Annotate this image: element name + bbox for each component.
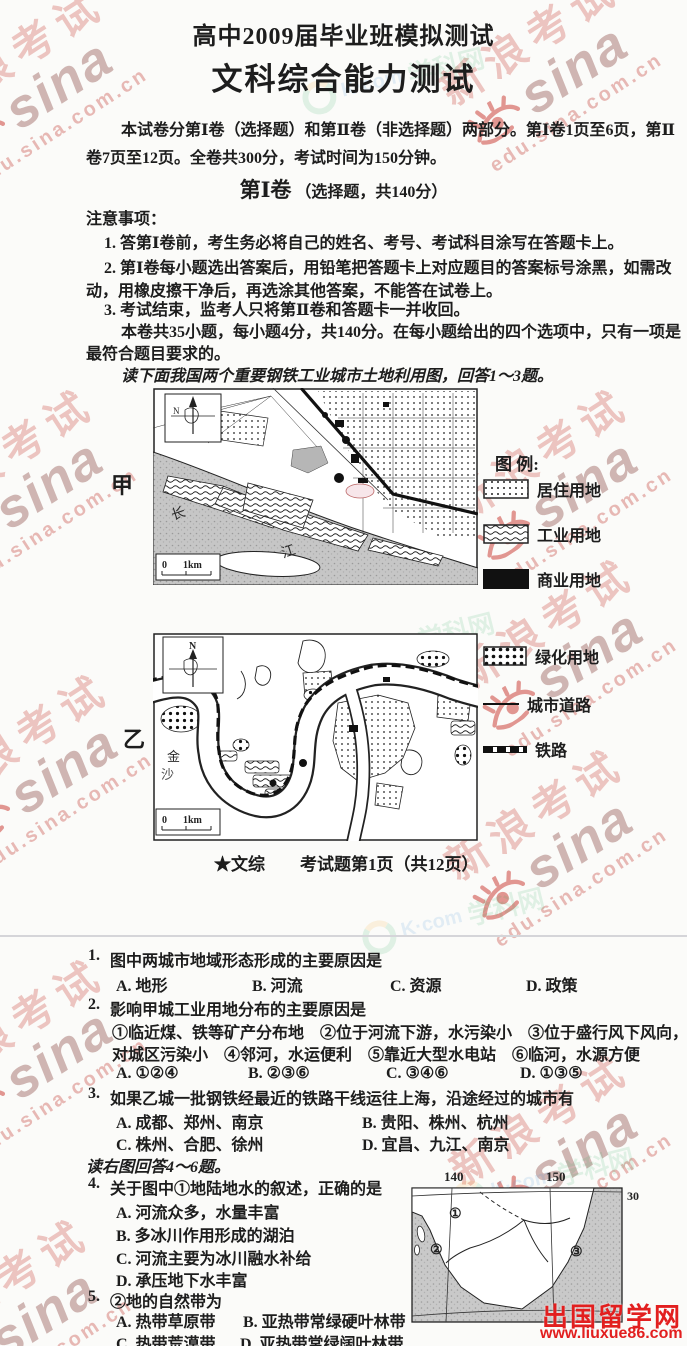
green-swatch-icon	[483, 646, 527, 666]
sina-eye-icon	[0, 103, 15, 166]
exam-subtitle: 文科综合能力测试	[0, 54, 687, 99]
q3-option-c: C. 株州、合肥、徐州	[116, 1131, 264, 1155]
notice-item-2-line-1: 2. 第Ⅰ卷每小题选出答案后，用铅笔把答题卡上对应题目的答案标号涂黑，如需改	[104, 254, 672, 278]
q1-option-c: C. 资源	[390, 972, 442, 996]
legend-title: 图 例:	[495, 450, 539, 475]
section-title: 第Ⅰ卷	[240, 178, 292, 202]
q2-items-line-2: 对城区污染小 ④邻河，水运便利 ⑤靠近大型水电站 ⑥临河，水源方便	[112, 1041, 640, 1065]
q4-stem: 关于图中①地陆地水的叙述，正确的是	[110, 1175, 382, 1199]
intro-line-1: 本试卷分第Ⅰ卷（选择题）和第Ⅱ卷（非选择题）两部分。第Ⅰ卷1页至6页，第Ⅱ	[121, 116, 675, 140]
svg-text:0: 0	[162, 560, 167, 571]
q5-number: 5.	[88, 1288, 100, 1306]
legend-residential: 居住用地	[483, 477, 601, 501]
river-name-char-1: 金	[167, 749, 180, 764]
scan-page-divider	[0, 935, 687, 937]
lat-label-30: 30	[627, 1189, 639, 1203]
map-jia-land-use: N 0 1km 长 江	[153, 388, 478, 585]
q2-option-c: C. ③④⑥	[386, 1063, 449, 1083]
map-point-1: ①	[449, 1207, 462, 1222]
q2-option-a: A. ①②④	[116, 1063, 179, 1083]
svg-text:0: 0	[162, 815, 167, 826]
q2-stem: 影响甲城工业用地分布的主要原因是	[110, 996, 366, 1020]
map-point-3: ③	[570, 1245, 583, 1260]
q1-stem: 图中两城市地域形态形成的主要原因是	[110, 947, 382, 971]
exam-scan-page: 新浪考试 sina edu.sina.com.cn 新浪考试 sina edu.…	[0, 0, 687, 1346]
q5-option-b: B. 亚热带常绿硬叶林带	[243, 1308, 406, 1332]
footer-doc-label: ★文综	[214, 850, 265, 875]
reading-prompt-q4-6: 读右图回答4～6题。	[86, 1153, 230, 1177]
q3-option-d: D. 宜昌、九江、南京	[362, 1131, 510, 1155]
svg-text:1km: 1km	[183, 815, 203, 826]
q1-number: 1.	[88, 947, 100, 965]
scale-bar: 0 1km	[156, 554, 220, 580]
q1-option-b: B. 河流	[252, 972, 303, 996]
industrial-swatch-icon	[483, 524, 529, 544]
railway-swatch-icon	[483, 746, 527, 753]
sina-eye-icon	[0, 788, 20, 851]
q3-stem: 如果乙城一批钢铁经最近的铁路干线运往上海，沿途经过的城市有	[110, 1085, 574, 1109]
north-arrow-icon: N	[163, 637, 223, 693]
river-name-char-2: 沙	[161, 767, 174, 782]
sina-eye-icon	[0, 1073, 15, 1136]
q5-option-a: A. 热带草原带	[116, 1308, 216, 1332]
legend-industrial: 工业用地	[483, 522, 601, 546]
map-yi-land-use: N 0 1km 金 沙	[153, 633, 478, 841]
reading-prompt-q1-3: 读下面我国两个重要钢铁工业城市土地利用图，回答1～3题。	[121, 362, 553, 386]
q1-option-a: A. 地形	[116, 972, 168, 996]
map-point-2: ②	[430, 1243, 443, 1258]
xkw-watermark: K·com 学科网	[358, 878, 548, 959]
q3-option-b: B. 贵阳、株州、杭州	[362, 1109, 509, 1133]
q5-option-c: C. 热带荒漠带	[116, 1330, 216, 1346]
scale-bar: 0 1km	[156, 809, 220, 835]
q2-option-b: B. ②③⑥	[248, 1063, 310, 1083]
notice-item-3: 3. 考试结束，监考人只将第Ⅱ卷和答题卡一并收回。	[104, 296, 470, 320]
notice-item-1: 1. 答第Ⅰ卷前，考生务必将自己的姓名、考号、考试科目涂写在答题卡上。	[104, 229, 624, 253]
legend-road: 城市道路	[483, 692, 591, 716]
exam-title: 高中2009届毕业班模拟测试	[0, 16, 687, 51]
map-yi-label: 乙	[123, 722, 145, 754]
q4-option-b: B. 多冰川作用形成的湖泊	[116, 1222, 295, 1246]
summary-line-2: 最符合题目要求的。	[86, 340, 230, 364]
map-jia-label: 甲	[111, 468, 133, 500]
q2-items-line-1: ①临近煤、铁等矿产分布地 ②位于河流下游，水污染小 ③位于盛行风下风向，	[112, 1019, 687, 1043]
q1-option-d: D. 政策	[526, 972, 578, 996]
section-subtitle: （选择题，共140分）	[295, 184, 447, 201]
svg-text:1km: 1km	[183, 560, 203, 571]
q3-number: 3.	[88, 1085, 100, 1103]
lon-label-150: 150	[546, 1169, 566, 1184]
summary-line-1: 本卷共35小题，每小题4分，共140分。在每小题给出的四个选项中，只有一项是	[121, 318, 681, 342]
q5-option-d: D. 亚热带常绿阔叶林带	[240, 1330, 404, 1346]
footer-page-label: 考试题第1页（共12页）	[300, 850, 479, 875]
residential-swatch-icon	[483, 479, 529, 499]
q4-number: 4.	[88, 1175, 100, 1193]
q3-option-a: A. 成都、郑州、南京	[116, 1109, 264, 1133]
q2-option-d: D. ①③⑤	[520, 1063, 583, 1083]
q2-number: 2.	[88, 996, 100, 1014]
road-swatch-icon	[483, 703, 519, 705]
legend-railway: 铁路	[483, 737, 567, 761]
svg-text:N: N	[173, 406, 180, 416]
commercial-swatch-icon	[483, 569, 529, 589]
legend-green: 绿化用地	[483, 644, 599, 668]
legend-commercial: 商业用地	[483, 567, 601, 591]
lon-label-140: 140	[444, 1169, 464, 1184]
q4-option-c: C. 河流主要为冰川融水补给	[116, 1245, 312, 1269]
liuxue-watermark-url: www.liuxue86.com	[540, 1325, 683, 1343]
q4-option-a: A. 河流众多，水量丰富	[116, 1199, 280, 1223]
notices-title: 注意事项：	[86, 205, 166, 229]
intro-line-2: 卷7页至12页。全卷共300分，考试时间为150分钟。	[86, 144, 446, 168]
north-arrow-icon: N	[165, 394, 221, 442]
section-heading: 第Ⅰ卷 （选择题，共140分）	[0, 174, 687, 204]
sina-eye-icon	[0, 503, 5, 566]
